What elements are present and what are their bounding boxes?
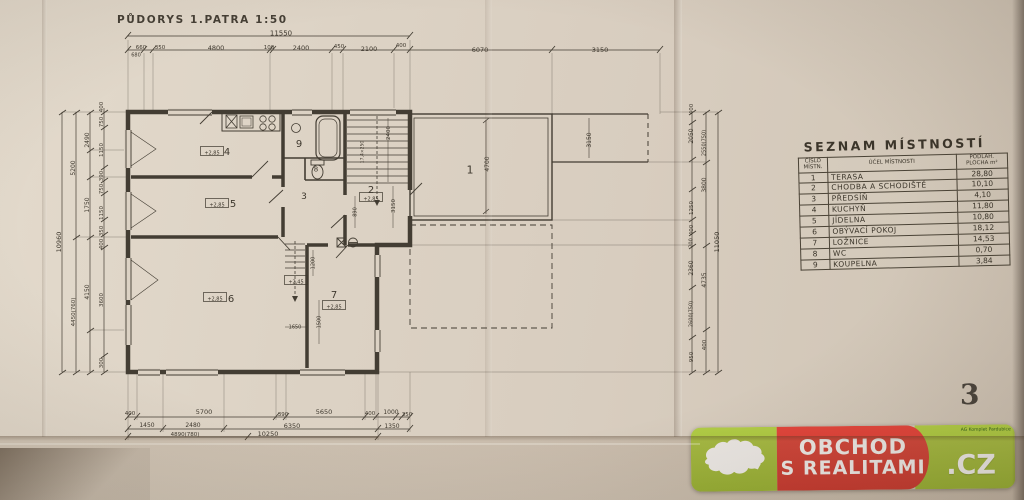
svg-text:400: 400	[125, 411, 136, 417]
svg-text:4735: 4735	[701, 272, 708, 287]
dim-label: 450	[334, 44, 345, 50]
dim-label: 950	[689, 351, 695, 362]
svg-text:1750: 1750	[84, 197, 91, 212]
svg-text:3: 3	[301, 192, 307, 202]
dim-label: 1350	[384, 423, 399, 430]
svg-text:1000: 1000	[383, 409, 398, 416]
dim-label: 2050	[688, 128, 695, 143]
page-number: 3	[960, 378, 979, 411]
svg-text:3150: 3150	[586, 132, 593, 147]
watermark-agency-text: AG Komplet Pardubice	[941, 427, 1011, 433]
svg-text:1650: 1650	[289, 325, 302, 331]
level-label: +2,85	[206, 199, 229, 209]
dim-label: 1650	[289, 325, 302, 331]
svg-text:680: 680	[131, 53, 141, 59]
level-label: +2,45	[285, 276, 308, 286]
room-number-wc: 8	[314, 165, 318, 173]
svg-text:10250: 10250	[258, 430, 279, 438]
dim-label: 1150	[99, 143, 105, 157]
dim-label: 2490	[84, 132, 91, 147]
room-number-cell: 2	[799, 183, 828, 195]
dim-label: 4735	[701, 272, 708, 287]
svg-text:1250: 1250	[689, 201, 695, 215]
room-number-cell: 9	[801, 259, 830, 271]
dim-label: 4700	[484, 156, 491, 171]
svg-text:4: 4	[224, 147, 230, 158]
svg-text:2: 2	[368, 185, 374, 196]
svg-text:4700: 4700	[484, 156, 491, 171]
dim-label: 3150	[586, 132, 593, 147]
svg-text:+2,85: +2,85	[363, 197, 378, 203]
svg-text:1: 1	[467, 164, 474, 177]
svg-text:2360: 2360	[688, 260, 695, 275]
svg-text:3600: 3600	[99, 293, 105, 307]
czech-map-icon	[697, 435, 771, 484]
dim-label: 300	[99, 357, 105, 368]
dim-label: 2400	[386, 126, 392, 140]
dim-label: 1000	[383, 409, 398, 416]
stove-symbol	[260, 116, 275, 130]
room-number-obyvaci-pokoj: 6	[228, 294, 234, 305]
dim-label: 5200	[70, 160, 77, 175]
svg-text:1350: 1350	[384, 423, 399, 430]
level-label: +2,85	[323, 301, 346, 311]
dim-label: 2100	[361, 45, 378, 53]
svg-text:350: 350	[99, 225, 105, 236]
dim-label: 890	[353, 207, 359, 217]
dim-label: 400	[689, 103, 695, 114]
svg-text:950: 950	[689, 351, 695, 362]
svg-text:350: 350	[402, 412, 413, 418]
dim-label: 2360	[688, 260, 695, 275]
dim-label: 1200	[311, 257, 317, 270]
dim-label: 400	[396, 43, 407, 49]
svg-text:660: 660	[136, 45, 147, 51]
svg-text:3150: 3150	[592, 46, 609, 54]
svg-text:8: 8	[314, 165, 318, 173]
svg-text:450: 450	[334, 44, 345, 50]
svg-text:1150: 1150	[99, 143, 105, 157]
dim-label: 400	[99, 101, 105, 112]
svg-text:400: 400	[689, 103, 695, 114]
col-header-area: PODLAH. PLOCHA m²	[956, 153, 1008, 169]
dim-label: 6350	[284, 422, 301, 430]
svg-text:6350: 6350	[284, 422, 301, 430]
dim-label: 400	[99, 238, 105, 249]
dim-label: 4150	[84, 284, 91, 299]
room-number-cell: 1	[799, 172, 828, 184]
room-number-terasa: 1	[467, 164, 474, 177]
svg-text:6070: 6070	[472, 46, 489, 54]
room-number-jidelna: 5	[230, 199, 236, 210]
watermark-tld: .CZ	[946, 450, 996, 482]
plan-title: PŮDORYS 1.PATRA 1:50	[117, 14, 288, 26]
svg-text:9: 9	[296, 139, 302, 150]
svg-text:2550(750): 2550(750)	[702, 130, 708, 156]
watermark-tld-panel: AG Komplet Pardubice .CZ	[915, 424, 1016, 489]
room-number-koupelna: 9	[296, 139, 302, 150]
svg-text:1500: 1500	[317, 316, 323, 329]
svg-text:400: 400	[99, 238, 105, 249]
level-label: +2,85	[204, 293, 227, 303]
svg-text:400: 400	[396, 43, 407, 49]
dim-label: 3600	[99, 293, 105, 307]
svg-text:+2,45: +2,45	[288, 280, 303, 286]
svg-text:+2,85: +2,85	[209, 203, 224, 209]
watermark-line1: OBCHOD	[799, 436, 907, 458]
svg-text:4450(760): 4450(760)	[71, 298, 77, 327]
svg-text:400: 400	[365, 411, 376, 417]
room-number-chodba: 2	[368, 185, 374, 196]
dim-label: 4800	[208, 44, 225, 52]
dim-label: 100	[264, 45, 275, 51]
dim-label: 10960	[55, 232, 63, 253]
level-label: +2,85	[201, 147, 224, 157]
svg-text:4150: 4150	[84, 284, 91, 299]
dim-label: 350	[155, 45, 166, 51]
dim-label: 1150	[99, 206, 105, 220]
dim-label: 660	[136, 45, 147, 51]
dim-label: 5650	[316, 408, 333, 416]
room-number-cell: 8	[801, 248, 830, 260]
svg-text:4890(780): 4890(780)	[171, 432, 200, 438]
svg-text:5200: 5200	[70, 160, 77, 175]
dim-label: 680	[131, 53, 141, 59]
dim-label: 3150	[391, 199, 397, 213]
washbasin-symbol	[292, 124, 301, 133]
col-header-number: ČÍSLO MÍSTN.	[798, 157, 827, 172]
dim-label: 11550	[270, 29, 292, 37]
svg-text:890: 890	[353, 207, 359, 217]
scanned-floorplan-photo: 1155066068035048001002400450210040060703…	[0, 0, 1024, 500]
room-number-cell: 3	[799, 194, 828, 206]
svg-text:5650: 5650	[316, 408, 333, 416]
dim-label: 390	[99, 170, 105, 181]
dim-label: 1750	[84, 197, 91, 212]
svg-text:+2,85: +2,85	[326, 305, 341, 311]
svg-text:200: 200	[689, 238, 695, 248]
svg-text:300: 300	[99, 357, 105, 368]
room-number-cell: 7	[800, 237, 829, 249]
watermark-line2: S REALITAMI	[781, 457, 926, 480]
svg-text:1200: 1200	[311, 257, 317, 270]
dim-label: 400	[689, 224, 695, 235]
crossed-square-symbol	[226, 115, 237, 128]
dim-label: 4450(760)	[71, 298, 77, 327]
svg-text:390: 390	[278, 412, 289, 418]
dim-label: 750	[99, 116, 105, 127]
dim-label: 1250	[689, 201, 695, 215]
svg-text:7: 7	[331, 290, 337, 301]
svg-text:750: 750	[99, 183, 105, 194]
svg-text:2490: 2490	[84, 132, 91, 147]
dim-label: 17,4×250	[359, 141, 365, 164]
watermark-map-panel	[691, 427, 778, 492]
svg-text:750: 750	[99, 116, 105, 127]
dim-label: 2550(750)	[702, 130, 708, 156]
svg-text:17,4×250: 17,4×250	[359, 141, 365, 164]
dim-label: 3800	[701, 177, 708, 192]
svg-text:10960: 10960	[55, 232, 63, 253]
svg-text:2050: 2050	[688, 128, 695, 143]
svg-text:11050: 11050	[713, 232, 721, 253]
room-number-predsin: 3	[301, 192, 307, 202]
dim-label: 11050	[713, 232, 721, 253]
svg-text:390: 390	[99, 170, 105, 181]
dim-label: 3150	[592, 46, 609, 54]
svg-text:3150: 3150	[391, 199, 397, 213]
plan-labels: 1155066068035048001002400450210040060703…	[55, 29, 721, 438]
room-number-kuchyn: 4	[224, 147, 230, 158]
dim-label: 4890(780)	[171, 432, 200, 438]
dim-label: 350	[402, 412, 413, 418]
room-area-cell: 3,84	[958, 255, 1010, 267]
svg-text:5: 5	[230, 199, 236, 210]
svg-text:400: 400	[99, 101, 105, 112]
dim-label: 200	[689, 238, 695, 248]
dim-label: 2400	[293, 44, 310, 52]
svg-text:2480: 2480	[185, 422, 200, 429]
terrace-outline	[410, 114, 648, 328]
svg-text:400: 400	[702, 339, 708, 350]
dim-label: 2480	[185, 422, 200, 429]
dim-label: 6070	[472, 46, 489, 54]
dim-label: 400	[365, 411, 376, 417]
svg-text:4800: 4800	[208, 44, 225, 52]
svg-text:2100: 2100	[361, 45, 378, 53]
room-number-loznice: 7	[331, 290, 337, 301]
room-list: SEZNAM MÍSTNOSTÍ ČÍSLO MÍSTN. ÚČEL MÍSTN…	[797, 134, 1016, 271]
room-table: ČÍSLO MÍSTN. ÚČEL MÍSTNOSTI PODLAH. PLOC…	[798, 153, 1011, 272]
svg-text:1150: 1150	[99, 206, 105, 220]
dim-label: 10250	[258, 430, 279, 438]
room-number-cell: 6	[800, 226, 829, 238]
room-number-cell: 4	[800, 205, 829, 217]
svg-text:2600(750): 2600(750)	[689, 301, 695, 327]
dim-label: 390	[278, 412, 289, 418]
room-number-cell: 5	[800, 215, 829, 227]
dim-label: 5700	[196, 408, 213, 416]
dim-label: 400	[125, 411, 136, 417]
svg-text:2400: 2400	[386, 126, 392, 140]
agency-watermark: OBCHOD S REALITAMI AG Komplet Pardubice …	[691, 424, 1016, 491]
svg-text:3800: 3800	[701, 177, 708, 192]
svg-text:+2,85: +2,85	[204, 151, 219, 157]
room-table-body: 1TERASA28,802CHODBA A SCHODIŠTĚ10,103PŘE…	[799, 168, 1010, 271]
dim-label: 350	[99, 225, 105, 236]
svg-text:400: 400	[689, 224, 695, 235]
svg-text:100: 100	[264, 45, 275, 51]
svg-text:5700: 5700	[196, 408, 213, 416]
svg-text:1450: 1450	[139, 422, 154, 429]
svg-text:350: 350	[155, 45, 166, 51]
dim-label: 1500	[317, 316, 323, 329]
dim-label: 400	[702, 339, 708, 350]
dim-label: 750	[99, 183, 105, 194]
dim-label: 2600(750)	[689, 301, 695, 327]
svg-text:6: 6	[228, 294, 234, 305]
svg-text:2400: 2400	[293, 44, 310, 52]
svg-text:11550: 11550	[270, 29, 292, 37]
svg-text:+2,85: +2,85	[207, 297, 222, 303]
walls	[128, 112, 410, 372]
dim-label: 1450	[139, 422, 154, 429]
watermark-text-panel: OBCHOD S REALITAMI	[777, 425, 930, 491]
